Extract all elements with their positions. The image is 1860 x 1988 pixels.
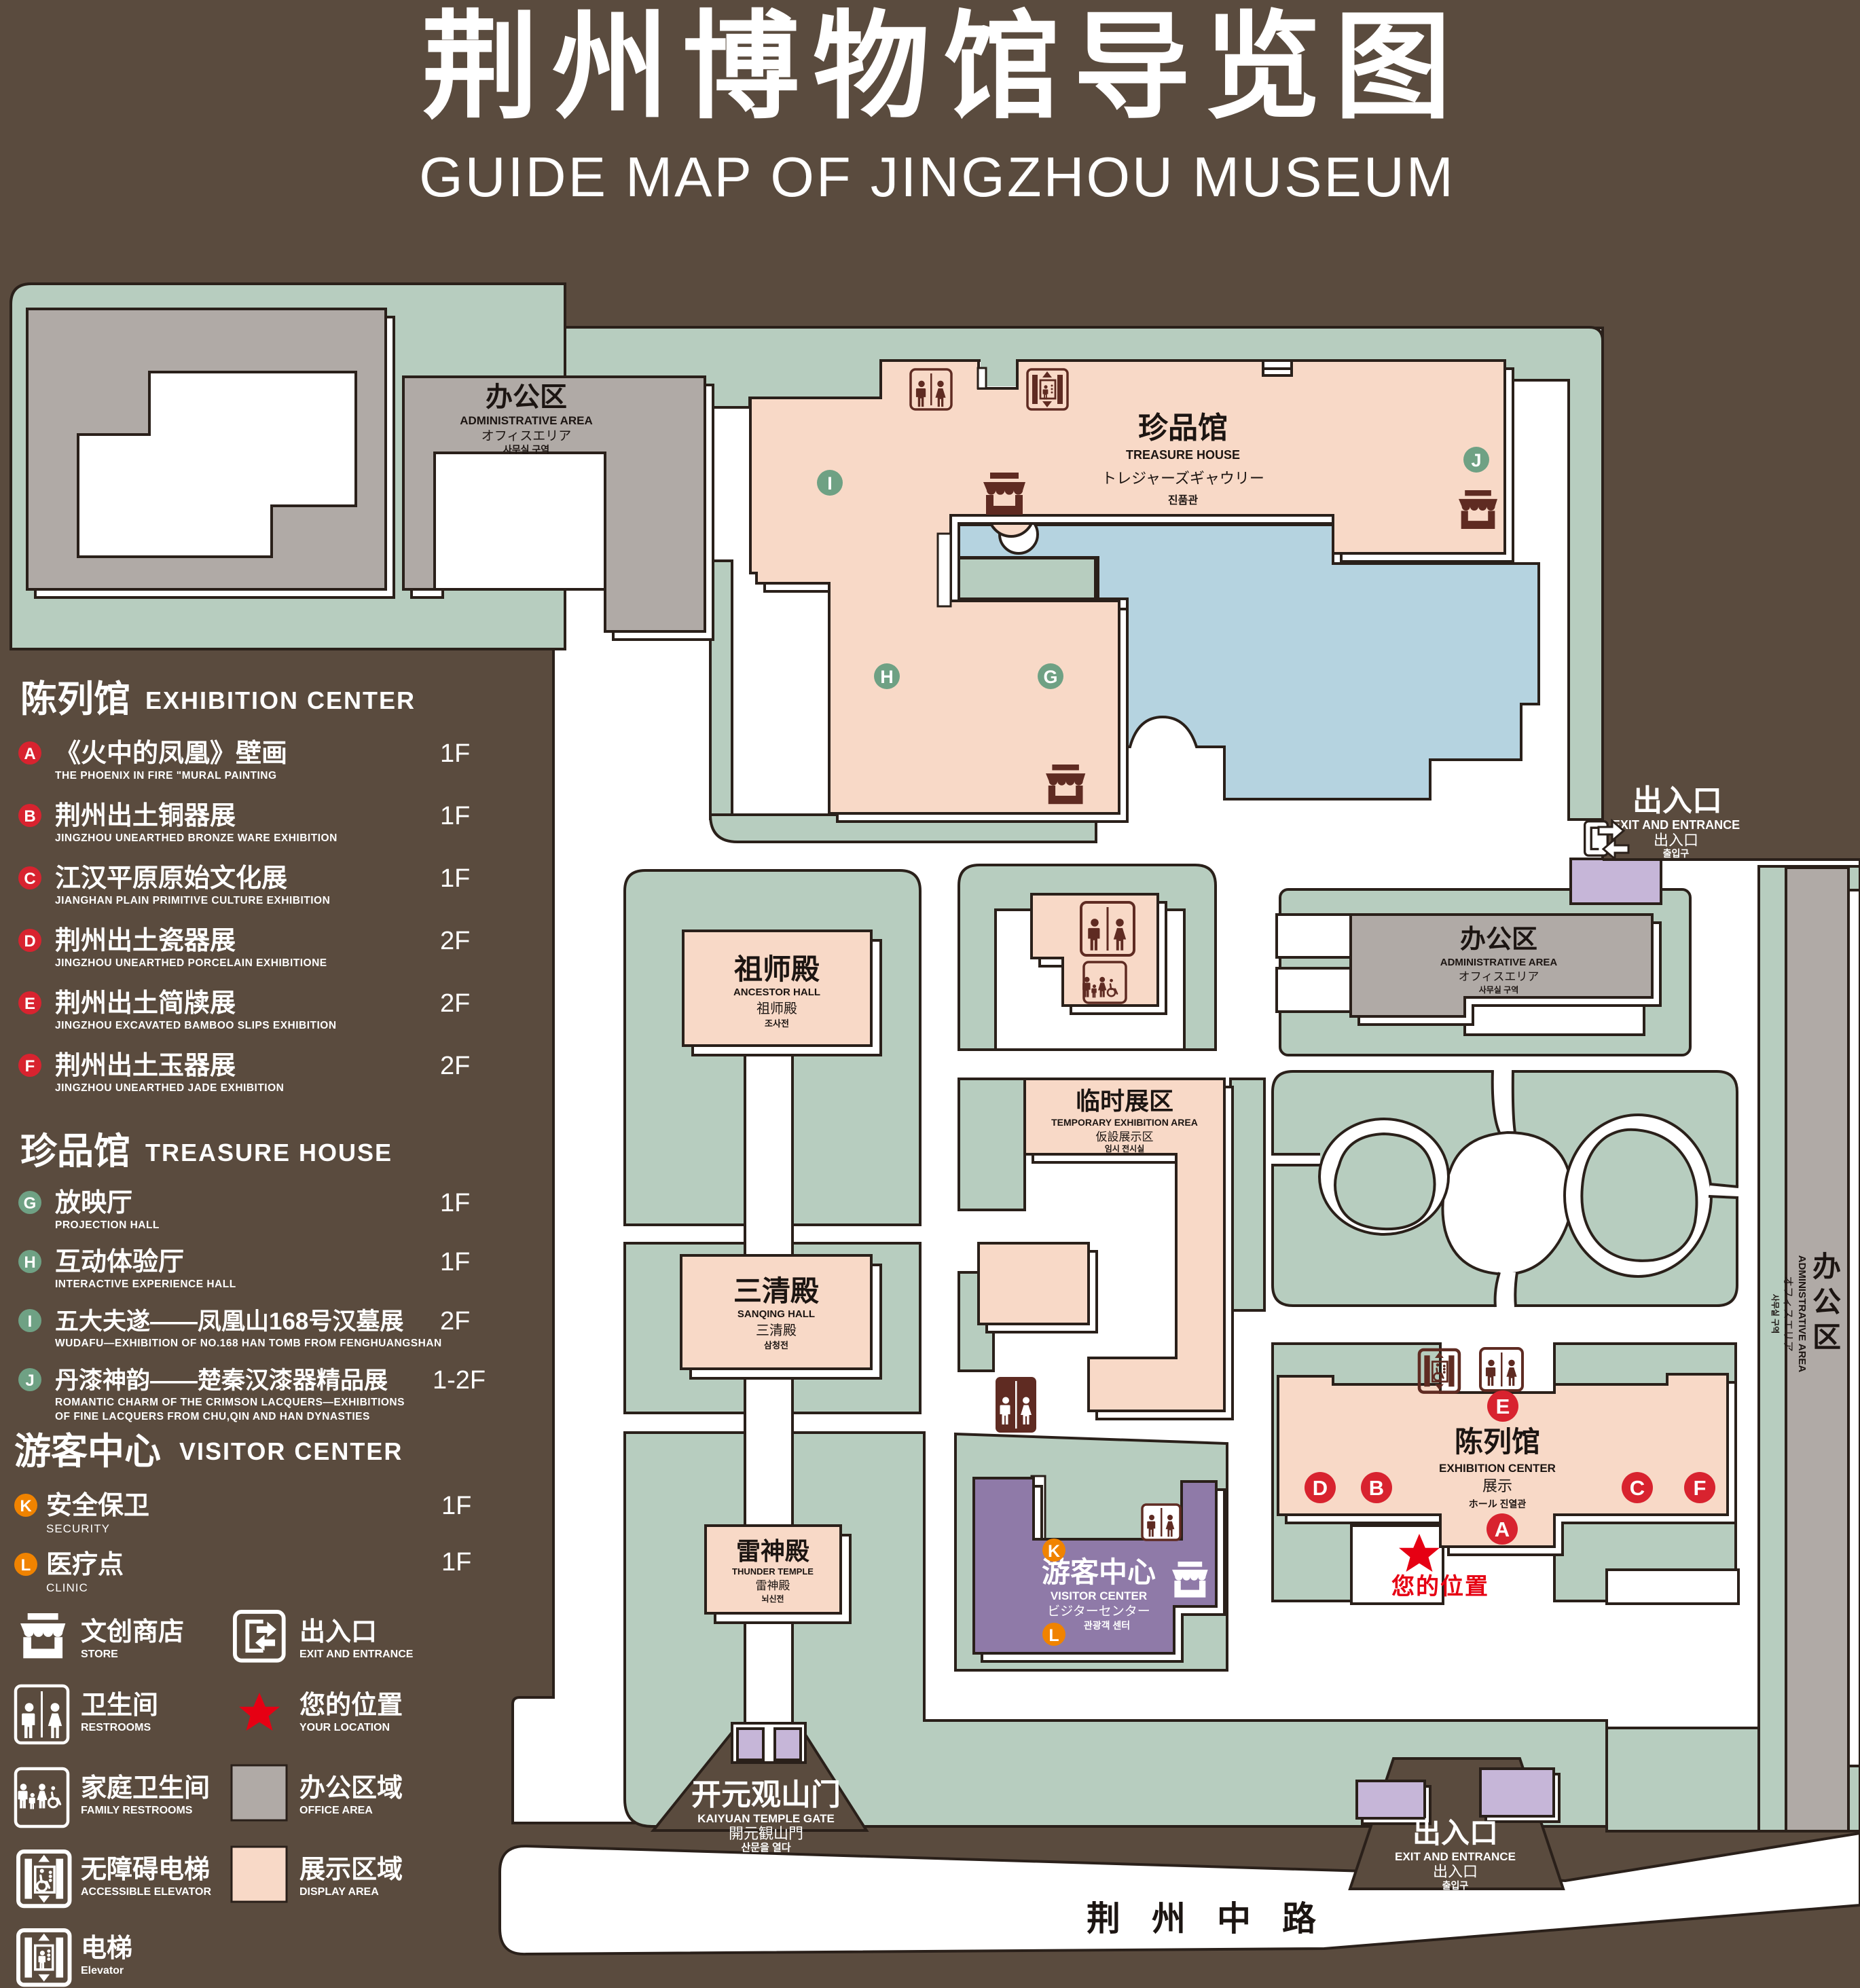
svg-text:トレジャーズギャウリー: トレジャーズギャウリー — [1101, 470, 1264, 487]
svg-text:뇌신전: 뇌신전 — [761, 1594, 784, 1604]
svg-text:仮設展示区: 仮設展示区 — [1096, 1130, 1154, 1143]
svg-text:五大夫遂——凤凰山168号汉墓展: 五大夫遂——凤凰山168号汉墓展 — [55, 1308, 403, 1335]
svg-text:办公区域: 办公区域 — [299, 1774, 403, 1803]
svg-text:JINGZHOU EXCAVATED BAMBOO SLIP: JINGZHOU EXCAVATED BAMBOO SLIPS EXHIBITI… — [55, 1020, 337, 1031]
svg-text:出入口: 出入口 — [1412, 1817, 1498, 1849]
svg-text:임시 전시실: 임시 전시실 — [1105, 1143, 1145, 1154]
svg-text:卫生间: 卫生间 — [81, 1691, 158, 1720]
svg-text:FAMILY RESTROOMS: FAMILY RESTROOMS — [81, 1805, 193, 1816]
svg-text:DISPLAY AREA: DISPLAY AREA — [299, 1886, 379, 1898]
svg-text:ADMINISTRATIVE AREA: ADMINISTRATIVE AREA — [460, 414, 593, 427]
svg-text:ADMINISTRATIVE AREA: ADMINISTRATIVE AREA — [1440, 957, 1558, 968]
svg-text:F: F — [25, 1057, 35, 1075]
svg-text:办公区: 办公区 — [1460, 925, 1537, 954]
svg-text:G: G — [1043, 667, 1057, 687]
svg-text:RESTROOMS: RESTROOMS — [81, 1722, 151, 1733]
svg-text:オフィスエリア: オフィスエリア — [1782, 1276, 1793, 1352]
svg-text:EXHIBITION CENTER: EXHIBITION CENTER — [1439, 1462, 1556, 1475]
svg-text:1F: 1F — [440, 1189, 470, 1217]
svg-text:산문을 열다: 산문을 열다 — [741, 1842, 790, 1854]
svg-text:荆州出土瓷器展: 荆州出土瓷器展 — [55, 927, 236, 955]
svg-text:开元观山门: 开元观山门 — [691, 1778, 841, 1811]
svg-text:JINGZHOU UNEARTHED JADE EXHIBI: JINGZHOU UNEARTHED JADE EXHIBITION — [55, 1082, 284, 1094]
svg-text:荆州出土简牍展: 荆州出土简牍展 — [55, 989, 236, 1018]
svg-text:E: E — [1496, 1395, 1510, 1418]
svg-text:1F: 1F — [440, 739, 470, 768]
svg-text:JINGZHOU UNEARTHED BRONZE WARE: JINGZHOU UNEARTHED BRONZE WARE EXHIBITIO… — [55, 832, 338, 844]
svg-text:珍品馆: 珍品馆 — [1138, 411, 1228, 445]
svg-text:사무실 구역: 사무실 구역 — [1479, 984, 1519, 995]
svg-text:オフィスエリア: オフィスエリア — [481, 429, 572, 443]
svg-text:出入口: 出入口 — [1654, 832, 1698, 849]
svg-text:荆州出土铜器展: 荆州出土铜器展 — [55, 802, 236, 830]
svg-text:H: H — [24, 1253, 35, 1272]
svg-text:ROMANTIC CHARM OF THE CRIMSON: ROMANTIC CHARM OF THE CRIMSON LACQUERS—E… — [55, 1397, 405, 1408]
svg-text:C: C — [24, 870, 35, 888]
svg-text:雷神殿: 雷神殿 — [756, 1579, 790, 1592]
svg-text:YOUR LOCATION: YOUR LOCATION — [299, 1722, 390, 1733]
svg-text:JINGZHOU UNEARTHED PORCELAIN E: JINGZHOU UNEARTHED PORCELAIN EXHIBITIONE — [55, 957, 327, 969]
svg-text:三清殿: 三清殿 — [756, 1323, 797, 1338]
svg-text:EXIT AND ENTRANCE: EXIT AND ENTRANCE — [299, 1649, 414, 1660]
svg-text:办: 办 — [1812, 1251, 1841, 1283]
svg-text:1F: 1F — [441, 1492, 471, 1520]
svg-text:PROJECTION HALL: PROJECTION HALL — [55, 1219, 160, 1231]
svg-text:삼청전: 삼청전 — [764, 1340, 788, 1350]
svg-text:出入口: 出入口 — [1633, 784, 1722, 817]
svg-text:KAIYUAN TEMPLE GATE: KAIYUAN TEMPLE GATE — [697, 1812, 835, 1825]
svg-text:陈列馆: 陈列馆 — [20, 679, 130, 720]
svg-text:家庭卫生间: 家庭卫生间 — [81, 1773, 210, 1803]
svg-text:江汉平原原始文化展: 江汉平原原始文化展 — [55, 864, 287, 893]
svg-text:GUIDE MAP OF JINGZHOU MUSEUM: GUIDE MAP OF JINGZHOU MUSEUM — [419, 145, 1455, 208]
svg-text:Elevator: Elevator — [81, 1965, 124, 1976]
svg-text:조사전: 조사전 — [765, 1018, 789, 1029]
svg-text:THUNDER TEMPLE: THUNDER TEMPLE — [732, 1566, 814, 1577]
svg-text:開元観山門: 開元観山門 — [729, 1825, 803, 1842]
svg-text:游客中心: 游客中心 — [14, 1431, 161, 1472]
svg-text:출입구: 출입구 — [1663, 848, 1690, 859]
svg-text:1F: 1F — [441, 1548, 471, 1577]
svg-text:EXIT AND ENTRANCE: EXIT AND ENTRANCE — [1395, 1850, 1516, 1863]
svg-text:F: F — [1694, 1476, 1707, 1500]
svg-text:VISITOR CENTER: VISITOR CENTER — [1051, 1589, 1147, 1602]
svg-text:진품관: 진품관 — [1168, 494, 1198, 507]
svg-text:JIANGHAN PLAIN PRIMITIVE CULTU: JIANGHAN PLAIN PRIMITIVE CULTURE EXHIBIT… — [55, 895, 330, 906]
svg-text:H: H — [880, 667, 894, 687]
svg-text:出入口: 出入口 — [1433, 1863, 1478, 1880]
svg-text:您的位置: 您的位置 — [1391, 1574, 1489, 1600]
svg-text:ホール 진열관: ホール 진열관 — [1469, 1498, 1527, 1509]
svg-text:电梯: 电梯 — [81, 1934, 132, 1963]
svg-text:D: D — [24, 932, 35, 951]
svg-text:1-2F: 1-2F — [433, 1366, 486, 1395]
svg-text:1F: 1F — [440, 802, 470, 830]
svg-text:E: E — [24, 995, 35, 1013]
svg-text:珍品馆: 珍品馆 — [20, 1131, 130, 1172]
svg-text:CLINIC: CLINIC — [46, 1581, 88, 1594]
svg-text:B: B — [24, 807, 35, 826]
svg-text:TEMPORARY EXHIBITION AREA: TEMPORARY EXHIBITION AREA — [1051, 1117, 1198, 1128]
svg-text:1F: 1F — [440, 1248, 470, 1276]
svg-text:INTERACTIVE EXPERIENCE HALL: INTERACTIVE EXPERIENCE HALL — [55, 1278, 236, 1290]
svg-text:A: A — [1495, 1517, 1510, 1541]
svg-text:游客中心: 游客中心 — [1042, 1556, 1156, 1588]
svg-text:I: I — [827, 473, 833, 494]
svg-text:医疗点: 医疗点 — [46, 1551, 124, 1579]
svg-text:SANQING HALL: SANQING HALL — [737, 1308, 815, 1320]
svg-text:办公区: 办公区 — [486, 382, 567, 412]
svg-text:STORE: STORE — [81, 1649, 118, 1660]
svg-text:관광객 센터: 관광객 센터 — [1084, 1620, 1130, 1631]
svg-text:オフィスエリア: オフィスエリア — [1459, 970, 1539, 983]
svg-text:L: L — [1048, 1626, 1059, 1645]
svg-text:2F: 2F — [440, 927, 470, 955]
svg-text:祖师殿: 祖师殿 — [756, 1001, 797, 1016]
svg-text:您的位置: 您的位置 — [299, 1691, 403, 1720]
svg-text:《火中的凤凰》壁画: 《火中的凤凰》壁画 — [55, 739, 287, 768]
svg-text:丹漆神韵——楚秦汉漆器精品展: 丹漆神韵——楚秦汉漆器精品展 — [55, 1367, 388, 1394]
svg-text:EXHIBITION CENTER: EXHIBITION CENTER — [145, 686, 416, 714]
svg-text:ビジターセンター: ビジターセンター — [1047, 1604, 1150, 1619]
svg-text:G: G — [24, 1194, 37, 1213]
svg-text:荆州出土玉器展: 荆州出土玉器展 — [55, 1052, 236, 1080]
svg-text:I: I — [28, 1312, 33, 1331]
svg-text:展示: 展示 — [1482, 1477, 1512, 1494]
svg-text:无障碍电梯: 无障碍电梯 — [81, 1856, 210, 1884]
svg-text:2F: 2F — [440, 1307, 470, 1336]
svg-text:ANCESTOR HALL: ANCESTOR HALL — [733, 987, 820, 998]
svg-text:K: K — [20, 1497, 32, 1515]
svg-text:三清殿: 三清殿 — [733, 1275, 819, 1307]
svg-text:2F: 2F — [440, 989, 470, 1018]
svg-text:区: 区 — [1812, 1321, 1841, 1353]
svg-text:D: D — [1313, 1476, 1328, 1500]
svg-text:J: J — [1471, 450, 1481, 471]
svg-text:사무실 구역: 사무실 구역 — [503, 444, 549, 455]
svg-text:1F: 1F — [440, 864, 470, 893]
svg-text:B: B — [1369, 1476, 1384, 1500]
svg-text:OFFICE AREA: OFFICE AREA — [299, 1805, 373, 1816]
svg-text:J: J — [25, 1372, 34, 1390]
svg-text:荆州博物馆导览图: 荆州博物馆导览图 — [422, 2, 1465, 132]
svg-text:SECURITY: SECURITY — [46, 1522, 110, 1535]
svg-text:陈列馆: 陈列馆 — [1455, 1426, 1540, 1458]
svg-text:C: C — [1630, 1476, 1645, 1500]
svg-text:祖师殿: 祖师殿 — [734, 953, 820, 985]
svg-text:出入口: 出入口 — [299, 1618, 377, 1646]
svg-text:雷神殿: 雷神殿 — [736, 1537, 809, 1565]
svg-text:ADMINISTRATIVE AREA: ADMINISTRATIVE AREA — [1796, 1255, 1808, 1373]
svg-text:VISITOR CENTER: VISITOR CENTER — [179, 1437, 403, 1465]
svg-text:2F: 2F — [440, 1052, 470, 1080]
svg-text:文创商店: 文创商店 — [81, 1618, 184, 1646]
svg-text:互动体验厅: 互动体验厅 — [55, 1248, 184, 1276]
svg-text:ACCESSIBLE ELEVATOR: ACCESSIBLE ELEVATOR — [81, 1886, 211, 1898]
svg-text:安全保卫: 安全保卫 — [46, 1491, 149, 1520]
svg-text:OF FINE LACQUERS FROM CHU,QIN: OF FINE LACQUERS FROM CHU,QIN AND HAN DY… — [55, 1411, 370, 1422]
svg-text:L: L — [21, 1556, 31, 1575]
svg-text:公: 公 — [1812, 1286, 1841, 1318]
svg-text:THE PHOENIX IN FIRE "MURAL PAI: THE PHOENIX IN FIRE "MURAL PAINTING — [55, 770, 277, 781]
svg-text:A: A — [24, 745, 35, 763]
svg-text:TREASURE HOUSE: TREASURE HOUSE — [145, 1139, 393, 1166]
svg-text:K: K — [1048, 1542, 1060, 1561]
svg-text:放映厅: 放映厅 — [55, 1189, 132, 1217]
svg-text:출입구: 출입구 — [1442, 1880, 1469, 1891]
svg-text:EXIT AND ENTRANCE: EXIT AND ENTRANCE — [1612, 818, 1740, 832]
svg-text:사무실 구역: 사무실 구역 — [1770, 1294, 1781, 1334]
svg-text:展示区域: 展示区域 — [299, 1856, 403, 1884]
svg-text:TREASURE HOUSE: TREASURE HOUSE — [1126, 448, 1240, 462]
svg-text:WUDAFU—EXHIBITION OF NO.168 HA: WUDAFU—EXHIBITION OF NO.168 HAN TOMB FRO… — [55, 1338, 442, 1349]
svg-text:临时展区: 临时展区 — [1076, 1087, 1173, 1115]
